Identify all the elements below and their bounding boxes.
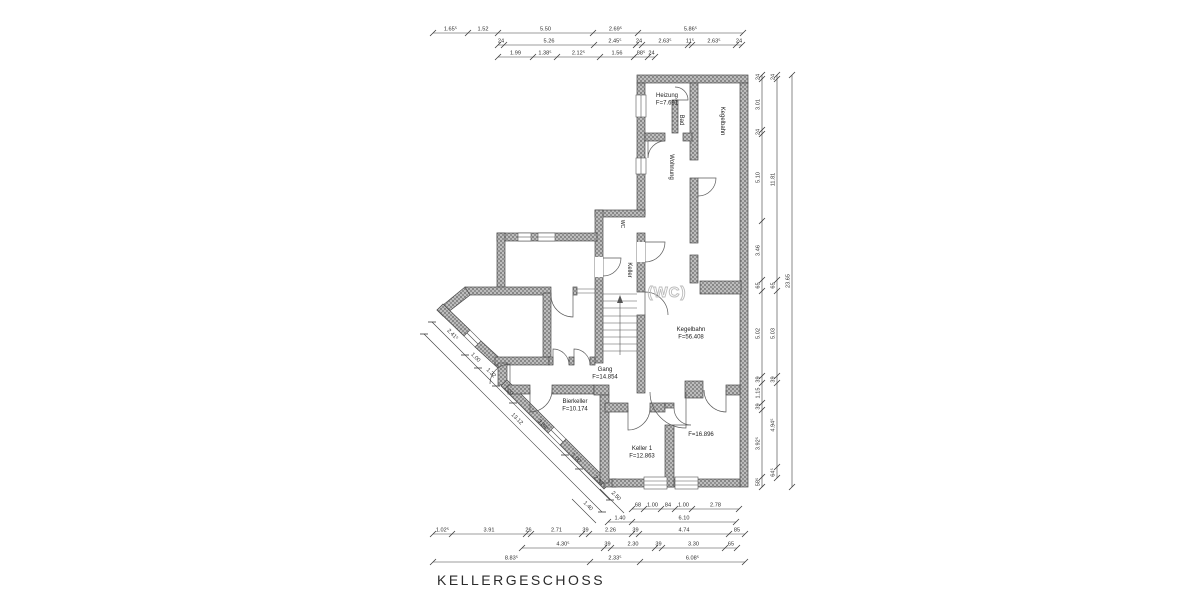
dim-label: 65 xyxy=(756,282,762,288)
wall-segment xyxy=(552,385,594,394)
dim-label: 24 xyxy=(736,39,742,45)
room-label-bad: Bad xyxy=(678,115,684,126)
dim-label: 64⁵ xyxy=(770,468,777,477)
dim-label: 2.63⁵ xyxy=(658,38,671,45)
dim-label: 2.45⁵ xyxy=(608,38,621,45)
dim-label: 5.02 xyxy=(756,328,762,339)
dim-label: 4.94⁵ xyxy=(770,418,777,431)
dim-label: 24 xyxy=(771,74,777,80)
wall-segment xyxy=(726,385,740,395)
door-arc xyxy=(603,258,621,276)
door-arc xyxy=(551,295,573,317)
door-arc xyxy=(704,390,726,412)
room-label-wc-small: WC xyxy=(619,220,625,229)
dim-label: 68 xyxy=(635,503,641,509)
dim-label: 23.65 xyxy=(786,274,792,288)
dim-label: 11.81 xyxy=(771,173,777,187)
dim-label: 2.63⁵ xyxy=(707,38,720,45)
dim-label: 1.99 xyxy=(510,51,521,57)
plan-title: KELLERGESCHOSS xyxy=(437,572,605,588)
dim-label: 88⁵ xyxy=(637,50,646,57)
dim-label: 2.71 xyxy=(551,528,562,534)
dim-label: 24 xyxy=(498,39,504,45)
dim-label: 84 xyxy=(665,503,671,509)
room-label-keller-2: F=16.896 xyxy=(688,432,714,438)
door-gap xyxy=(637,242,645,262)
dim-label: 4.30⁵ xyxy=(556,541,569,548)
dim-label: 5.86⁵ xyxy=(684,26,697,33)
dim-label: 1.40 xyxy=(615,516,626,522)
wall-segment xyxy=(683,133,692,141)
dim-label: 1.15 xyxy=(756,388,762,399)
dim-label: 39 xyxy=(604,542,610,548)
wall-segment xyxy=(700,281,741,294)
dim-label: 6.10 xyxy=(679,516,690,522)
staircase xyxy=(603,294,637,355)
wall-segment xyxy=(690,255,698,283)
wall-segment xyxy=(605,403,628,412)
wall-segment xyxy=(497,233,505,292)
room-label-wc-ghost: (WC) xyxy=(648,284,687,301)
door-arc xyxy=(645,242,665,262)
wall-segment xyxy=(685,381,703,398)
floorplan-page: 1.65⁵1.525.502.69⁵5.86⁵245.262.45⁵242.63… xyxy=(0,0,1200,600)
dim-label: 1.02⁵ xyxy=(436,527,449,534)
stair-arrow xyxy=(617,295,623,303)
wall-segment xyxy=(543,293,551,357)
window xyxy=(636,158,646,174)
dim-label: 13.12 xyxy=(510,412,524,426)
dim-label: 2.30 xyxy=(628,542,639,548)
room-label-wohnung: Wohnung xyxy=(668,154,674,180)
door-arc xyxy=(698,178,716,196)
room-label-gang: GangF=14.854 xyxy=(592,367,618,381)
wall-segment xyxy=(645,133,665,141)
dim-label: 1.00 xyxy=(678,503,689,509)
dim-label: 1.00 xyxy=(469,352,481,364)
dim-label: 58⁵ xyxy=(755,478,762,487)
room-label-bierkeller: BierkellerF=10.174 xyxy=(562,399,588,413)
dim-label: 65 xyxy=(771,282,777,288)
dim-label: 1.52 xyxy=(478,27,489,33)
dim-label: 4.74 xyxy=(679,528,690,534)
dim-label: 39 xyxy=(756,403,762,409)
dim-label: 5.50 xyxy=(540,27,551,33)
dim-label: 6.08⁵ xyxy=(686,555,699,562)
window xyxy=(577,289,595,293)
dim-label: 2.78 xyxy=(710,503,721,509)
room-label-kegelbahn-corridor: Kegelbahn xyxy=(719,107,725,136)
dim-label: 2.12⁵ xyxy=(572,50,585,57)
wall-segment xyxy=(590,357,595,365)
dim-label: 1.56 xyxy=(612,51,623,57)
door-arc xyxy=(628,408,650,430)
walls xyxy=(437,75,748,489)
window xyxy=(636,95,646,117)
window xyxy=(538,233,555,241)
dim-label: 24 xyxy=(756,129,762,135)
dim-label: 5.10 xyxy=(756,172,762,183)
dim-label: 26 xyxy=(525,528,531,534)
door-arc xyxy=(553,349,569,365)
dim-label: 3.30 xyxy=(688,542,699,548)
door-gap xyxy=(595,257,603,277)
room-label-keller-corridor: Keller xyxy=(626,262,632,277)
dim-label: 1.32 xyxy=(485,367,497,379)
dim-label: 39 xyxy=(632,528,638,534)
door-arc xyxy=(648,141,665,158)
window xyxy=(518,233,531,241)
dim-label: 39 xyxy=(655,542,661,548)
door-arc xyxy=(674,408,691,425)
dim-label: 39 xyxy=(771,376,777,382)
wall-segment xyxy=(465,287,551,295)
wall-segment xyxy=(637,315,645,393)
wall-segment xyxy=(690,178,698,243)
floorplan-drawing: 1.65⁵1.525.502.69⁵5.86⁵245.262.45⁵242.63… xyxy=(0,0,1200,600)
wall-segment xyxy=(573,287,577,295)
dim-label: 5.03 xyxy=(771,328,777,339)
wall-segment xyxy=(569,357,574,365)
dim-label: 3.92⁵ xyxy=(755,437,762,450)
dim-label: 2.33⁵ xyxy=(608,555,621,562)
dim-label: 65 xyxy=(728,542,734,548)
dim-label: 39 xyxy=(756,376,762,382)
dim-label: 3.46 xyxy=(756,245,762,256)
dim-label: 24 xyxy=(636,39,642,45)
dim-label: 2.69⁵ xyxy=(609,26,622,33)
dim-label: 3.01 xyxy=(756,99,762,110)
dim-label: 85 xyxy=(734,528,740,534)
dim-label: 24 xyxy=(648,51,654,57)
dim-label: 1.00 xyxy=(647,503,658,509)
dim-label: 3.91 xyxy=(484,528,495,534)
door-arc xyxy=(574,349,590,365)
dim-label: 39 xyxy=(582,528,588,534)
room-label-heizung: HeizungF=7.691 xyxy=(656,93,679,107)
window xyxy=(644,477,667,489)
dim-label: 1.38⁵ xyxy=(538,50,551,57)
wall-segment xyxy=(549,357,553,365)
dim-label: 2.26 xyxy=(605,528,616,534)
dim-label: 11⁵ xyxy=(686,38,694,45)
wall-segment xyxy=(690,83,698,160)
room-label-kegelbahn-room: KegelbahnF=56.408 xyxy=(677,327,706,341)
wall-segment xyxy=(637,233,645,292)
wall-segment xyxy=(665,403,674,408)
window xyxy=(675,477,698,489)
room-label-keller-1: Keller 1F=12.863 xyxy=(629,446,655,460)
wall-segment xyxy=(637,75,748,83)
dim-label: 5.26 xyxy=(544,39,555,45)
dim-label: 1.65⁵ xyxy=(444,26,457,33)
wall-segment xyxy=(594,385,609,395)
dim-label: 24 xyxy=(756,74,762,80)
dim-label: 8.83⁵ xyxy=(505,555,518,562)
